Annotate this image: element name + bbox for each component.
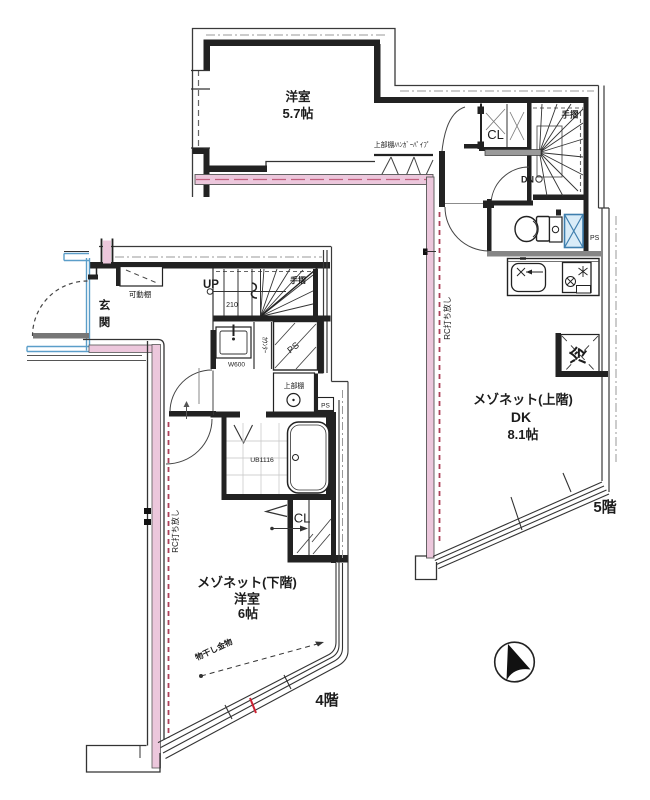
svg-text:CL: CL — [487, 127, 504, 142]
svg-text:可動棚: 可動棚 — [129, 289, 152, 299]
svg-text:W600: W600 — [228, 362, 245, 369]
svg-text:玄: 玄 — [99, 298, 111, 312]
svg-text:4階: 4階 — [315, 691, 338, 709]
svg-text:6帖: 6帖 — [238, 606, 258, 621]
svg-text:関: 関 — [99, 316, 111, 329]
svg-text:冷: 冷 — [568, 346, 589, 364]
svg-text:手摺: 手摺 — [561, 110, 579, 120]
svg-text:上部棚: 上部棚 — [284, 381, 305, 390]
svg-text:PS: PS — [321, 403, 330, 410]
svg-text:手摺: 手摺 — [290, 275, 306, 285]
svg-text:CL: CL — [294, 511, 311, 526]
svg-text:洋室: 洋室 — [285, 89, 311, 104]
svg-text:UB1116: UB1116 — [250, 457, 274, 464]
svg-text:5.7帖: 5.7帖 — [282, 106, 313, 121]
svg-text:8.1帖: 8.1帖 — [507, 427, 538, 442]
svg-text:RC打ち放し: RC打ち放し — [442, 296, 452, 340]
svg-text:RC打ち放し: RC打ち放し — [170, 509, 180, 553]
svg-text:210: 210 — [226, 302, 238, 309]
svg-text:メゾネット(上階): メゾネット(上階) — [473, 392, 573, 407]
svg-text:上部棚/ﾊﾝｶﾞｰﾊﾟｲﾌﾟ: 上部棚/ﾊﾝｶﾞｰﾊﾟｲﾌﾟ — [374, 140, 430, 149]
svg-text:メゾネット(下階): メゾネット(下階) — [197, 575, 297, 590]
svg-text:PS: PS — [590, 235, 600, 242]
svg-text:DN: DN — [521, 175, 534, 185]
svg-text:ｶｳﾝﾀｰ: ｶｳﾝﾀｰ — [261, 337, 269, 353]
svg-text:物干し金物: 物干し金物 — [193, 636, 233, 662]
svg-text:DK: DK — [511, 409, 531, 425]
svg-text:洋室: 洋室 — [234, 592, 260, 607]
svg-text:5階: 5階 — [593, 498, 616, 516]
